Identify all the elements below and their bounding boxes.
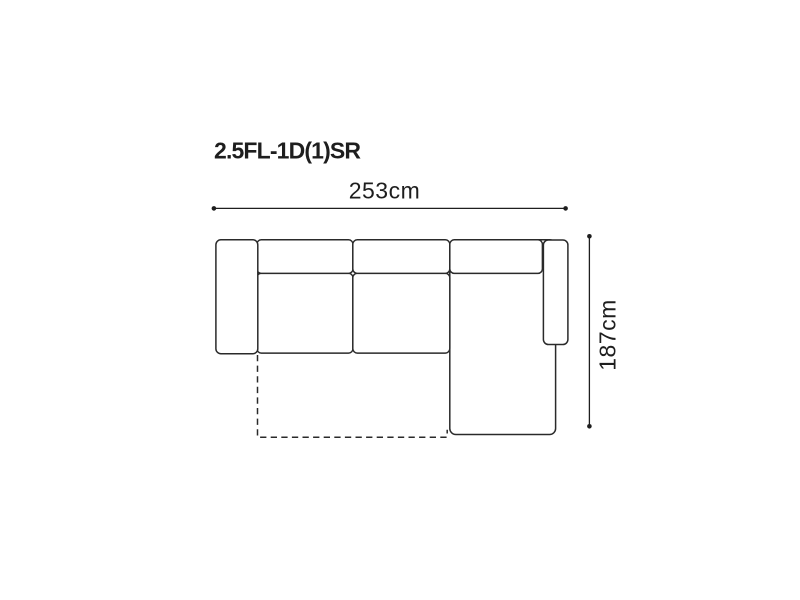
svg-text:253cm: 253cm	[349, 178, 421, 204]
svg-text:2.5FL-1D(1)SR: 2.5FL-1D(1)SR	[214, 138, 361, 164]
svg-text:187cm: 187cm	[594, 299, 620, 371]
